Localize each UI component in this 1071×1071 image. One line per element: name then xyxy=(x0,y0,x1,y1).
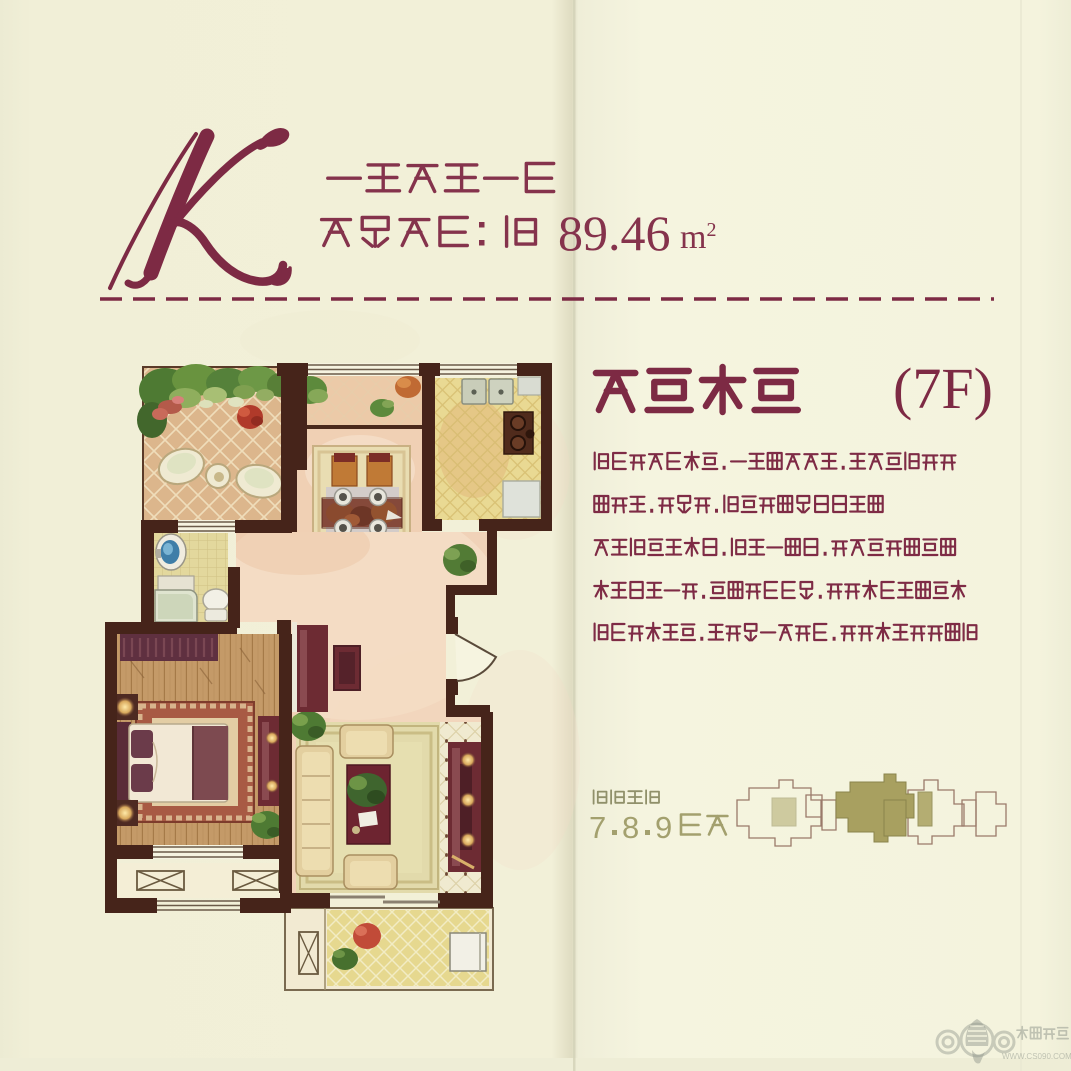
svg-text:8: 8 xyxy=(622,810,639,845)
svg-text:(7F): (7F) xyxy=(893,356,993,421)
svg-text:7: 7 xyxy=(589,810,606,845)
svg-text:WWW.CS090.COM: WWW.CS090.COM xyxy=(1002,1052,1071,1061)
svg-text:9: 9 xyxy=(655,810,672,845)
svg-text:89.46: 89.46 xyxy=(558,205,671,261)
